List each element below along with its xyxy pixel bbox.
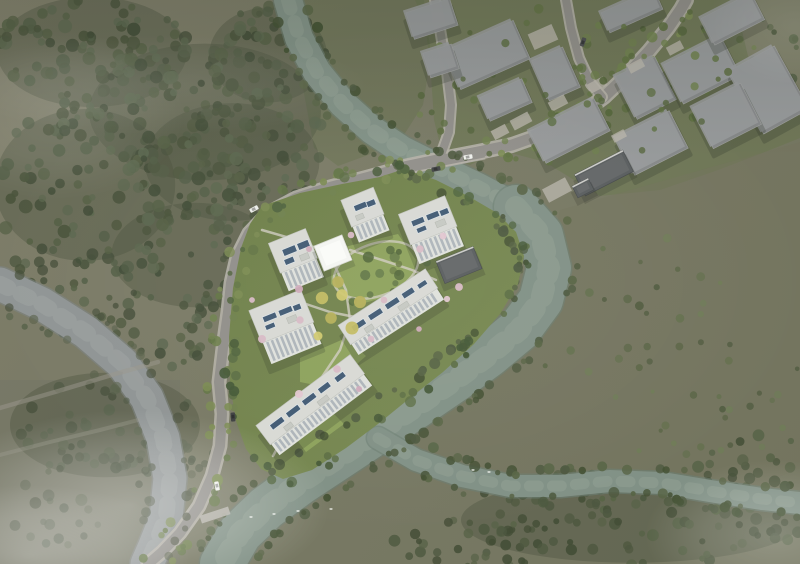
aerial-site-rendering	[0, 0, 800, 564]
top-vignette	[0, 0, 800, 564]
rendering-canvas	[0, 0, 800, 564]
atmosphere-layer	[0, 0, 800, 564]
